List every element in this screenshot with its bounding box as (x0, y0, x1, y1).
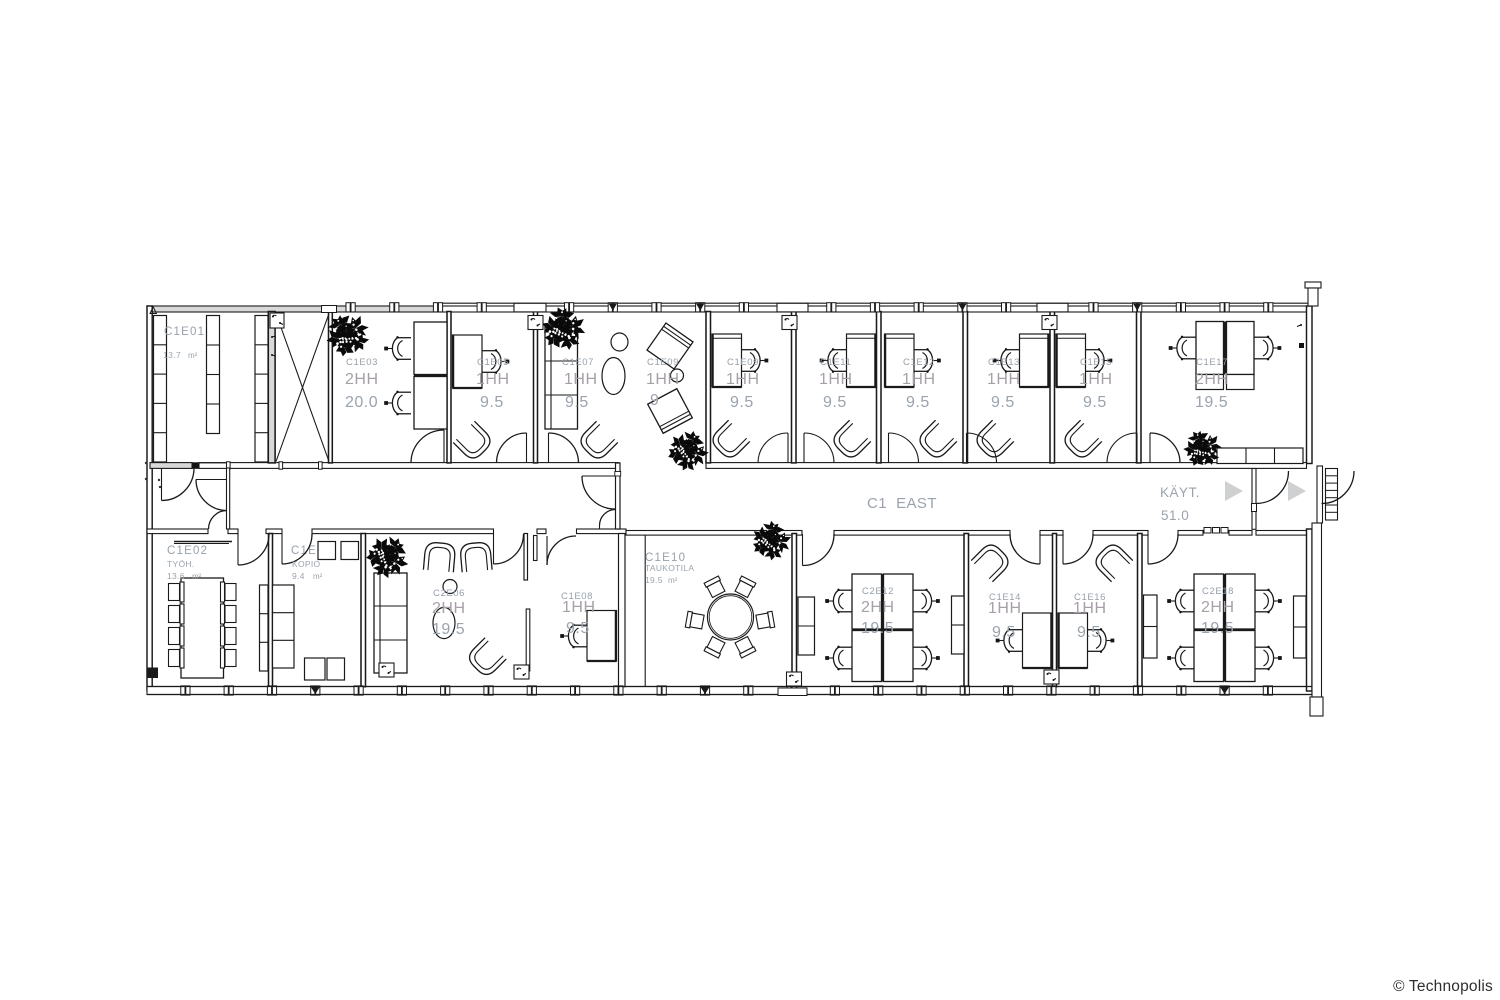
svg-text:13.7: 13.7 (163, 350, 181, 360)
svg-text:2HH: 2HH (1195, 371, 1229, 388)
svg-text:C1E11: C1E11 (820, 357, 851, 368)
svg-text:C1E09: C1E09 (647, 357, 679, 368)
svg-text:C1E09: C1E09 (727, 357, 759, 368)
svg-text:C1E12: C1E12 (903, 357, 935, 368)
svg-text:TAUKOTILA: TAUKOTILA (645, 563, 694, 573)
svg-text:9.5: 9.5 (566, 620, 590, 637)
svg-text:C2E06: C2E06 (433, 588, 465, 599)
svg-text:19.5: 19.5 (1201, 620, 1234, 637)
svg-text:9.5: 9.5 (823, 394, 847, 411)
svg-text:9.5: 9.5 (565, 394, 589, 411)
svg-text:1HH: 1HH (988, 600, 1022, 617)
svg-text:9.5: 9.5 (1083, 394, 1107, 411)
svg-text:C1E15: C1E15 (1080, 357, 1112, 368)
svg-text:9.5: 9.5 (480, 394, 504, 411)
svg-text:1HH: 1HH (1073, 600, 1107, 617)
svg-text:C1E01: C1E01 (164, 326, 205, 338)
svg-text:m²: m² (188, 351, 198, 360)
svg-text:m²: m² (668, 576, 678, 585)
svg-text:51.0: 51.0 (1161, 508, 1189, 523)
svg-text:1HH: 1HH (987, 371, 1021, 388)
svg-text:19.5: 19.5 (1195, 394, 1228, 411)
svg-text:9.5: 9.5 (906, 394, 930, 411)
svg-text:C1 EAST: C1 EAST (867, 495, 937, 512)
svg-text:1HH: 1HH (902, 371, 936, 388)
svg-text:C2E18: C2E18 (1202, 586, 1234, 597)
svg-text:C2E12: C2E12 (862, 586, 894, 597)
svg-text:C1E13: C1E13 (988, 357, 1020, 368)
svg-text:© Technopolis: © Technopolis (1393, 978, 1493, 995)
svg-text:9.5: 9.5 (992, 624, 1016, 641)
svg-text:19.5: 19.5 (861, 620, 894, 637)
svg-text:C1E03: C1E03 (346, 357, 378, 368)
svg-text:m²: m² (313, 572, 323, 581)
svg-text:1HH: 1HH (819, 371, 853, 388)
svg-text:9.5: 9.5 (991, 394, 1015, 411)
svg-text:1HH: 1HH (562, 599, 596, 616)
svg-text:m²: m² (192, 572, 202, 581)
svg-text:2HH: 2HH (345, 371, 379, 388)
svg-text:C1E05: C1E05 (477, 357, 509, 368)
svg-text:19.5: 19.5 (645, 575, 663, 585)
svg-text:C1E07: C1E07 (562, 357, 594, 368)
svg-text:20.0: 20.0 (345, 394, 378, 411)
svg-text:13.6: 13.6 (167, 571, 185, 581)
svg-text:KÄYT.: KÄYT. (1160, 485, 1200, 500)
svg-text:9.4: 9.4 (292, 571, 305, 581)
svg-text:2HH: 2HH (861, 599, 895, 616)
svg-text:9: 9 (650, 392, 659, 409)
svg-text:KOPIO: KOPIO (292, 559, 321, 569)
svg-text:1HH: 1HH (564, 371, 598, 388)
svg-text:C1E17: C1E17 (1196, 357, 1228, 368)
svg-text:C1E02: C1E02 (167, 545, 208, 557)
svg-text:1HH: 1HH (476, 371, 510, 388)
svg-text:2HH: 2HH (1201, 599, 1235, 616)
svg-text:2HH: 2HH (432, 600, 466, 617)
svg-text:TYÖH.: TYÖH. (167, 559, 194, 569)
svg-text:9.5: 9.5 (1077, 624, 1101, 641)
svg-text:9.5: 9.5 (730, 394, 754, 411)
svg-text:19.5: 19.5 (432, 621, 465, 638)
svg-text:1HH: 1HH (1079, 371, 1113, 388)
svg-text:1HH: 1HH (726, 371, 760, 388)
svg-text:1HH: 1HH (646, 371, 680, 388)
